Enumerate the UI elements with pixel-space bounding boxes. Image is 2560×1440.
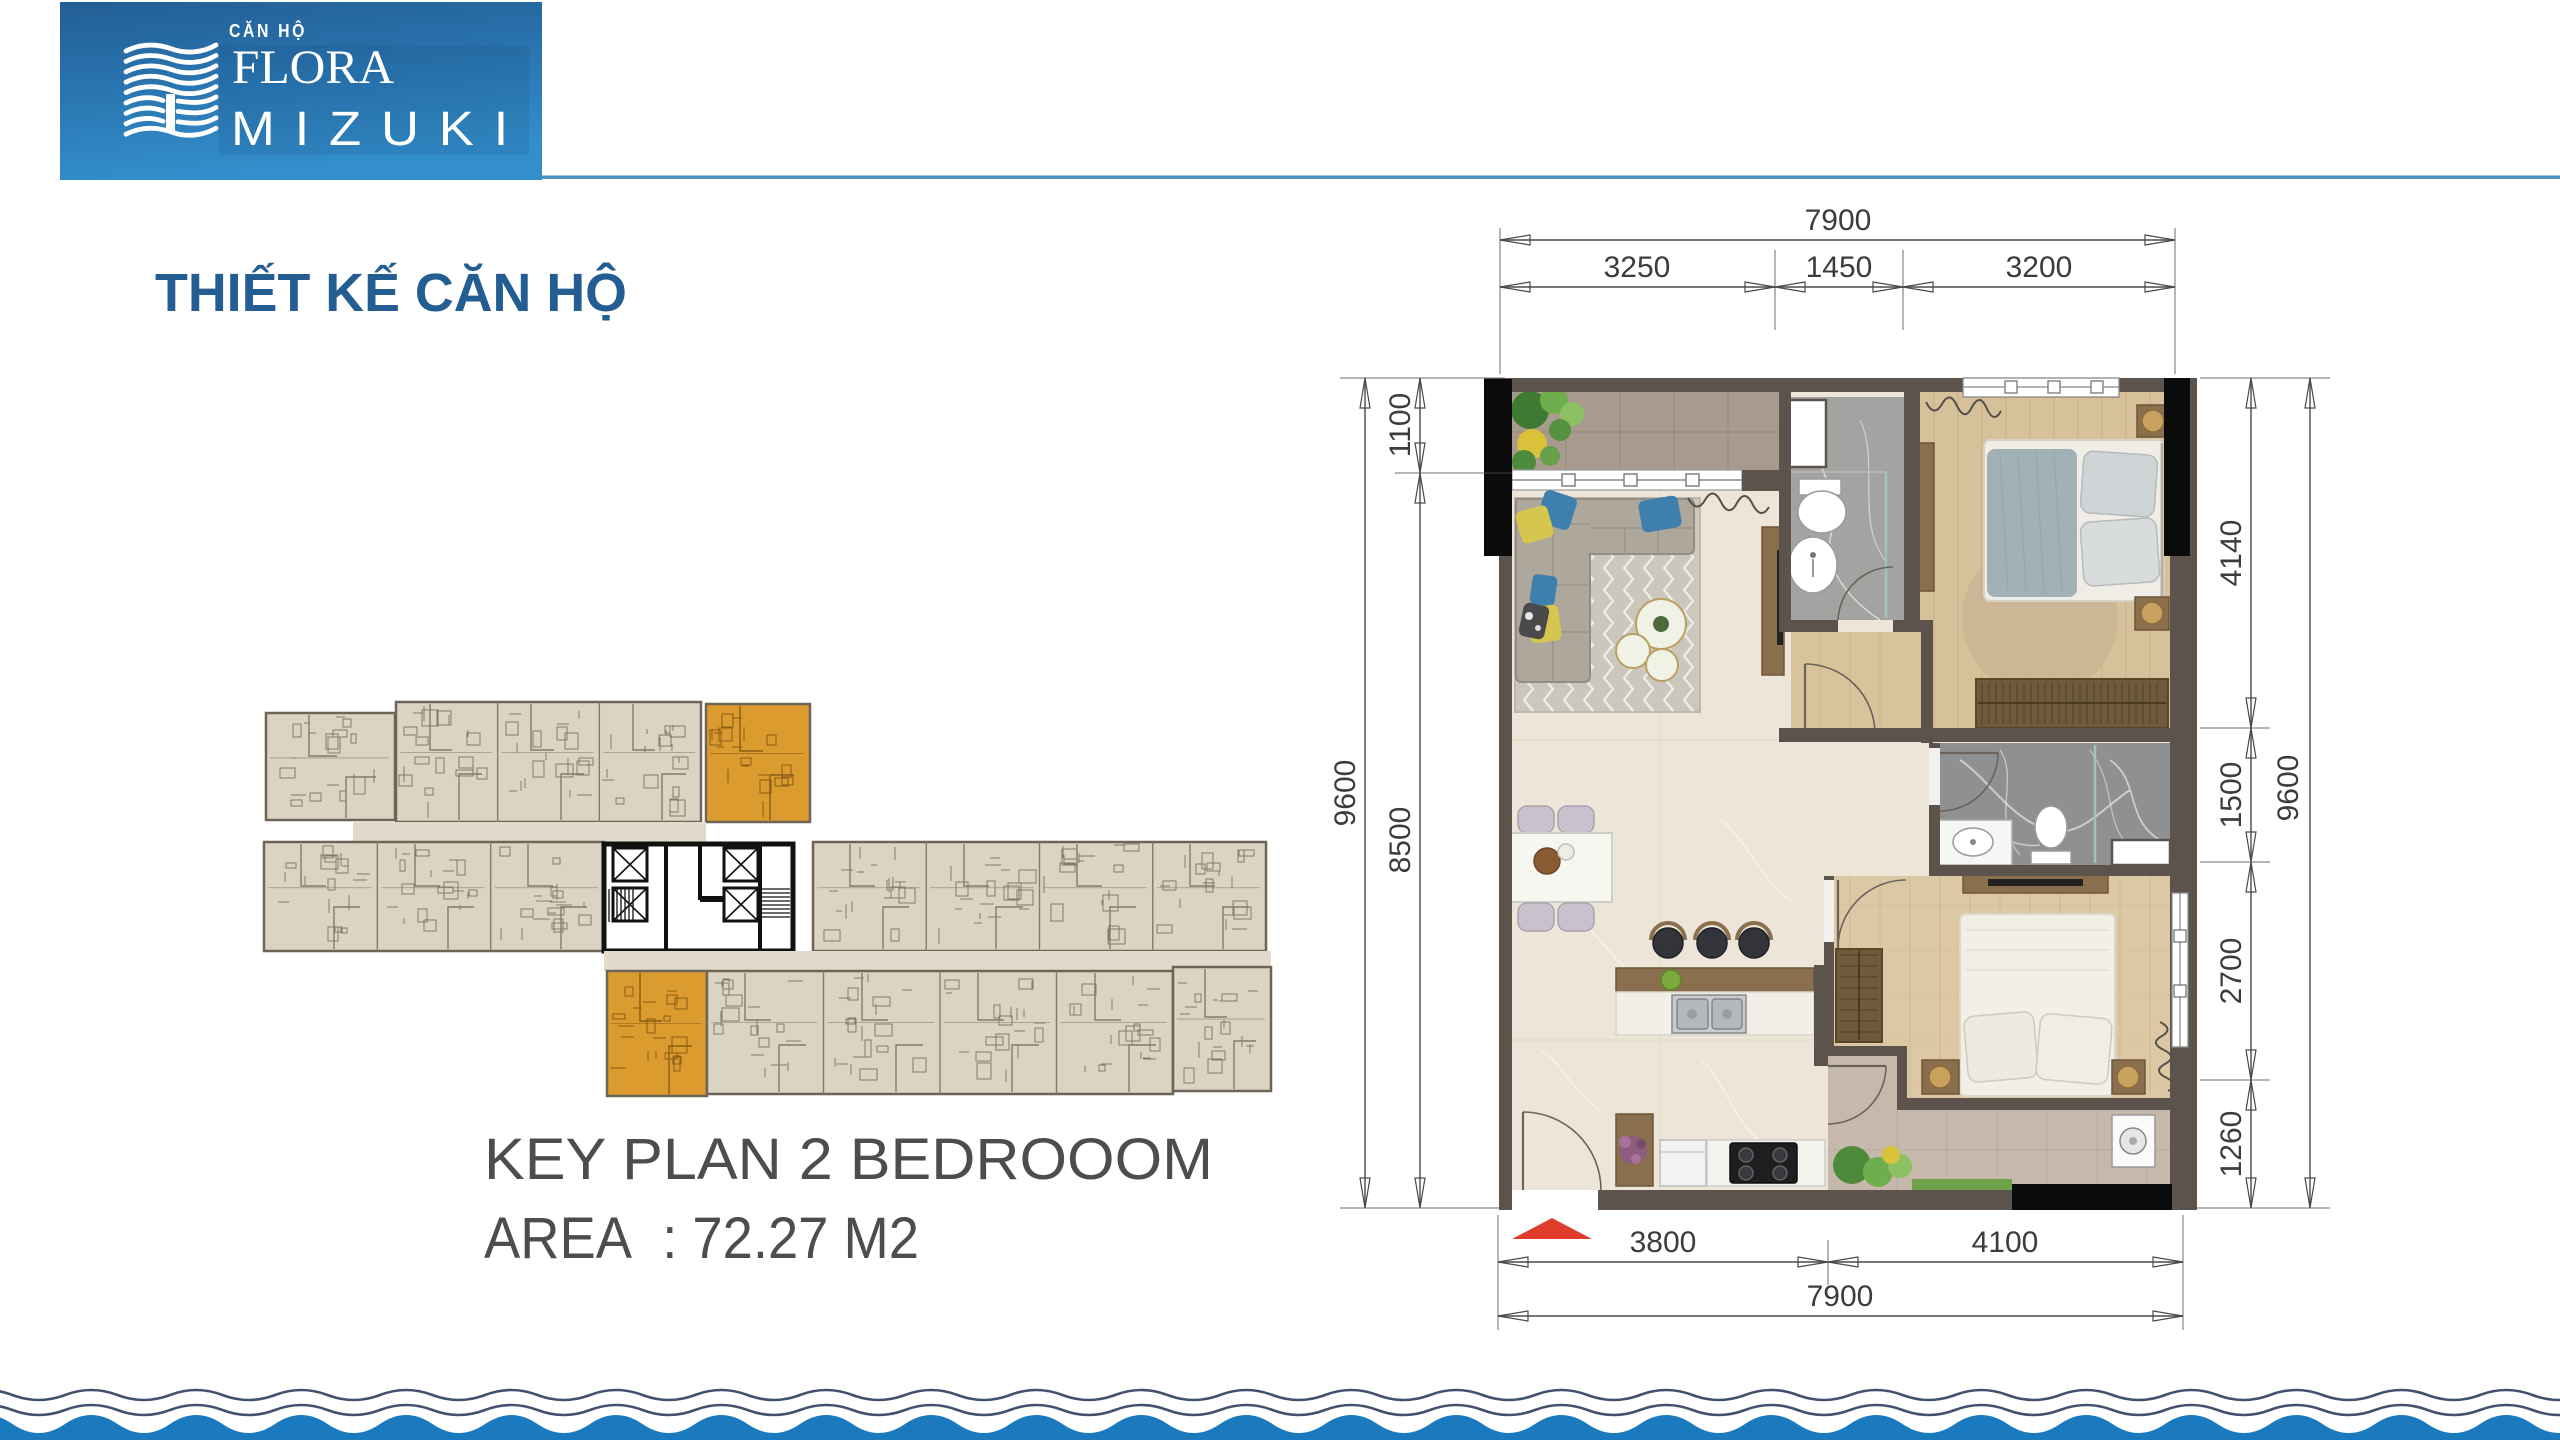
svg-text:1450: 1450	[1806, 251, 1873, 284]
svg-text:1100: 1100	[1384, 393, 1417, 458]
svg-text:AREA : 72.27 M2: AREA : 72.27 M2	[484, 1206, 919, 1271]
svg-text:8500: 8500	[1384, 807, 1417, 874]
svg-text:2700: 2700	[2215, 938, 2248, 1005]
svg-text:1500: 1500	[2215, 762, 2248, 829]
svg-text:3800: 3800	[1630, 1226, 1697, 1259]
svg-text:MIZUKI: MIZUKI	[231, 103, 528, 156]
svg-text:3250: 3250	[1604, 251, 1671, 284]
svg-text:FLORA: FLORA	[232, 41, 394, 94]
svg-text:3200: 3200	[2006, 251, 2073, 284]
svg-text:THIẾT KẾ CĂN HỘ: THIẾT KẾ CĂN HỘ	[155, 262, 627, 323]
svg-text:KEY PLAN 2 BEDROOOM: KEY PLAN 2 BEDROOOM	[484, 1127, 1213, 1192]
svg-text:4140: 4140	[2215, 520, 2248, 587]
svg-text:4100: 4100	[1972, 1226, 2039, 1259]
svg-text:CĂN HỘ: CĂN HỘ	[229, 20, 307, 41]
svg-text:9600: 9600	[1329, 760, 1362, 827]
svg-text:7900: 7900	[1807, 1280, 1874, 1313]
svg-text:9600: 9600	[2272, 755, 2305, 822]
svg-text:7900: 7900	[1805, 204, 1872, 237]
svg-text:1260: 1260	[2215, 1111, 2248, 1178]
